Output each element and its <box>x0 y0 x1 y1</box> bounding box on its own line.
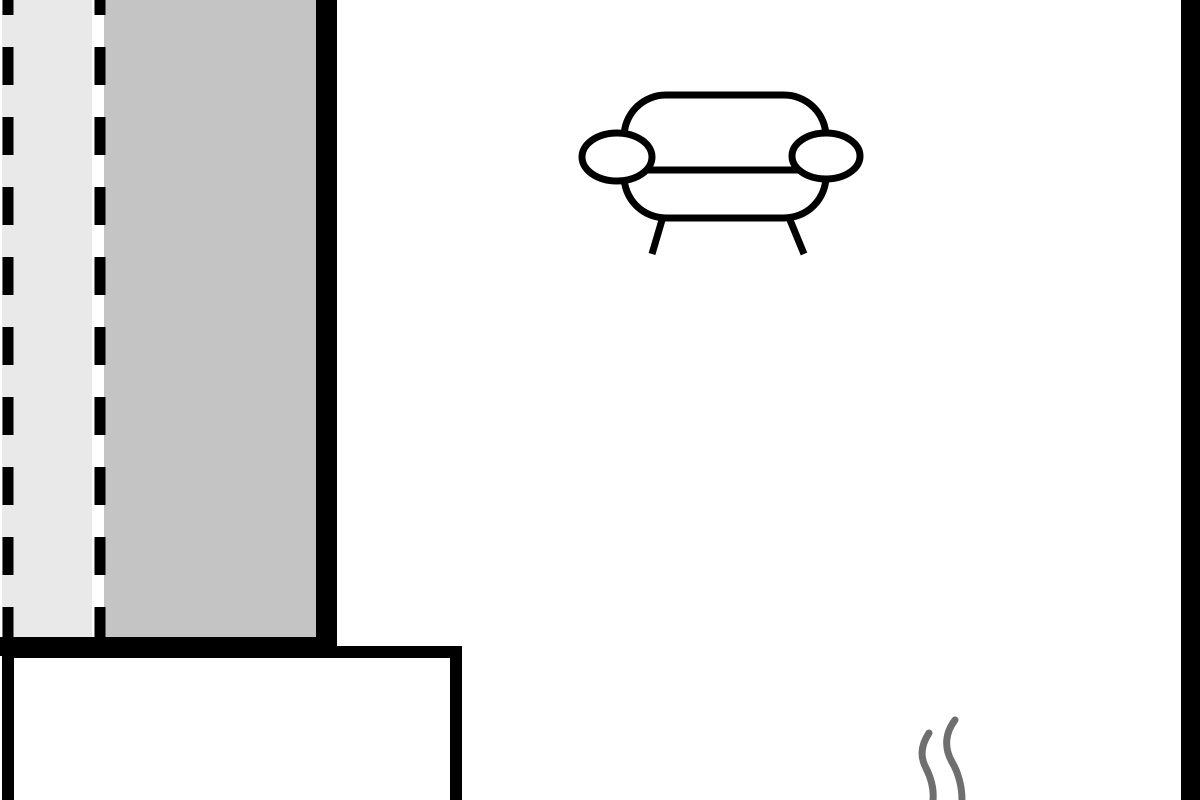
floorplan-drawing <box>0 0 1200 800</box>
steam-squiggle-left <box>922 733 933 800</box>
sofa-leg-right <box>790 220 804 254</box>
sofa-armrest-right <box>792 133 860 179</box>
sofa-armrest-left <box>582 133 652 181</box>
exterior-wall-right <box>1181 0 1200 800</box>
shaded-zone-light <box>2 0 92 638</box>
shaded-zone-dark <box>104 0 316 638</box>
steam-squiggle-right <box>947 720 962 800</box>
floorplan-canvas <box>0 0 1200 800</box>
interior-wall-left <box>316 0 337 657</box>
sofa-leg-left <box>652 220 662 254</box>
lower-room-block <box>8 652 456 800</box>
